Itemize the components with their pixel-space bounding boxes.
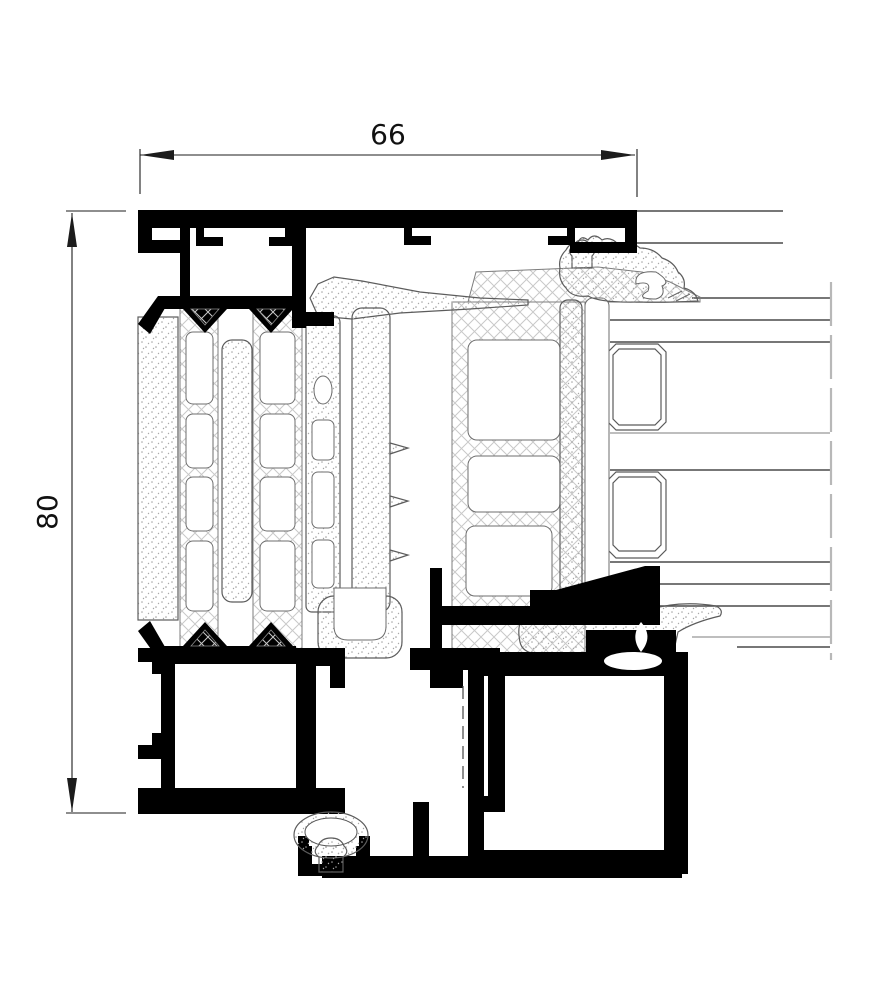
outer-infill-panel [138,317,178,620]
dimension-height-label: 80 [31,494,64,530]
gasket-arc-recess [604,652,662,670]
glazing-tape-strips [560,298,609,606]
glazing-spacer-bar [608,472,666,558]
dimension-height-80: 80 [31,211,126,813]
technical-drawing-window-profile-section: 66 80 [0,0,875,1000]
dimension-width-label: 66 [370,118,406,151]
glazing-spacer-bar [608,344,666,430]
dimension-width-66: 66 [140,118,637,197]
profile-section-svg: 66 80 [0,0,875,1000]
